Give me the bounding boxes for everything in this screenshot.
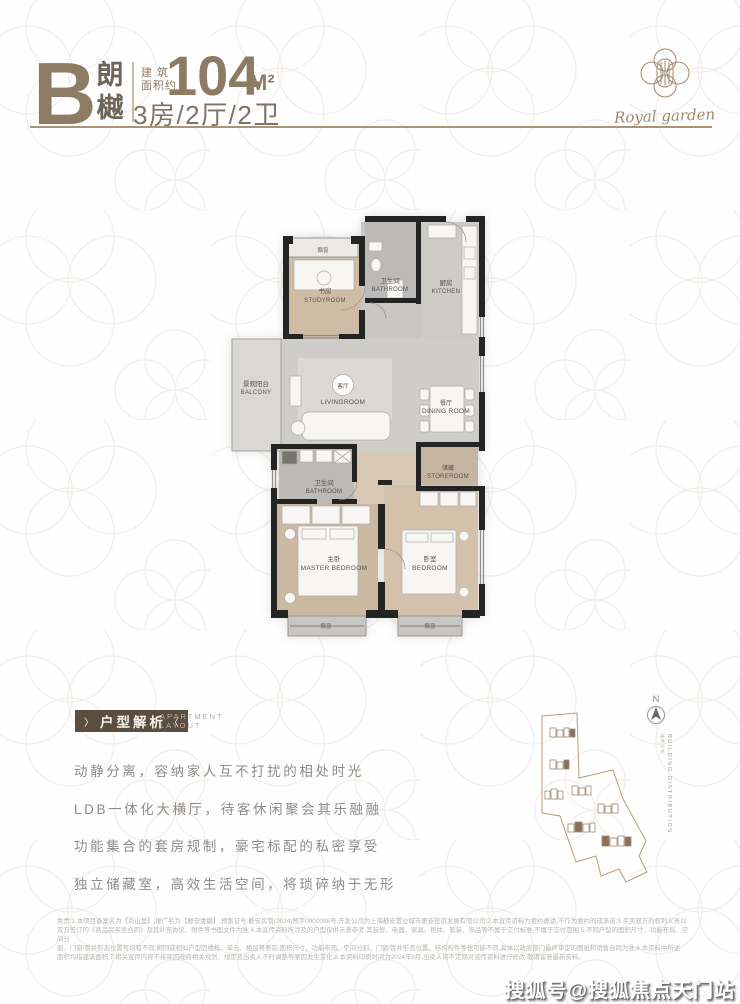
master-label-zh: 主卧 bbox=[328, 554, 342, 563]
analysis-paragraph: 动静分离，容纳家人互不打扰的相处时光 LDB一体化大横厅，待客休闲聚会其乐融融 … bbox=[74, 760, 414, 910]
kitchen-label-en: KITCHEN bbox=[432, 289, 460, 295]
north-arrow-icon: N bbox=[648, 694, 665, 724]
header-rule bbox=[30, 126, 712, 128]
bathroom2-label-en: BATHROOM bbox=[306, 489, 343, 495]
dining-label-en: DINING ROOM bbox=[422, 408, 470, 415]
bathroom2-label-zh: 卫生间 bbox=[314, 478, 334, 487]
balcony-label-en: BALCONY bbox=[241, 390, 272, 396]
disclaimer-line: 双方签订的《商品房买卖合同》及其补充协议、附件等书面文件为准;4.本宣传资料所涉… bbox=[57, 926, 691, 944]
kitchen-label-zh: 厨房 bbox=[440, 278, 453, 287]
dining-label-zh: 餐厅 bbox=[440, 399, 452, 407]
analysis-line: 功能集合的套房规制，豪宅标配的私密享受 bbox=[74, 835, 414, 855]
study-label-zh: 书房 bbox=[319, 286, 332, 295]
living-label-zh: 客厅 bbox=[337, 382, 349, 390]
disclaimer-line: 割、门窗/管井形态位置等均有不同;相同或相似户型因楼栋、单元、楼层等差别,面积尺… bbox=[57, 944, 691, 953]
bathroom1-label-zh: 卫生间 bbox=[380, 276, 400, 285]
storeroom-label-zh: 储藏 bbox=[442, 464, 454, 472]
bay-window-label-top: 飘窗 bbox=[317, 246, 329, 254]
storeroom-label-en: STOREROOM bbox=[427, 474, 469, 480]
unit-type-letter: B bbox=[33, 50, 95, 138]
disclaimer-line: 免责:1.本项目备案名为【岚山里】,推广名为【静安壹樾】,预售证号:静安房管(2… bbox=[57, 917, 691, 926]
analysis-line: 独立储藏室，高效生活空间，将琐碎纳于无形 bbox=[74, 873, 414, 893]
bay-window-label-left: 飘窗 bbox=[320, 622, 332, 630]
site-plan: N BUILDING DISTRIBUTION 楼栋分布 bbox=[520, 686, 696, 906]
analysis-line: LDB一体化大横厅，待客休闲聚会其乐融融 bbox=[74, 798, 414, 818]
unit-type-name: 朗 樾 bbox=[95, 59, 125, 125]
unit-name-char-bottom: 樾 bbox=[95, 92, 125, 125]
brand-logo: Royal garden bbox=[606, 46, 724, 126]
section-subtitle-line1: APARTMENT bbox=[160, 712, 224, 721]
bay-window-label-right: 飘窗 bbox=[424, 622, 436, 630]
analysis-line: 动静分离，容纳家人互不打扰的相处时光 bbox=[74, 760, 414, 780]
section-subtitle-line2: LAYOUT bbox=[160, 721, 224, 730]
watermark-sohu: 搜狐号@搜狐焦点天门站 bbox=[504, 974, 735, 1003]
balcony-label-zh: 景观阳台 bbox=[243, 379, 269, 388]
disclaimer: 免责:1.本项目备案名为【岚山里】,推广名为【静安壹樾】,预售证号:静安房管(2… bbox=[57, 917, 691, 962]
quatrefoil-logo-icon bbox=[638, 46, 692, 100]
brand-logo-text: Royal garden bbox=[614, 105, 716, 127]
svg-text:N: N bbox=[653, 694, 660, 704]
bedroom-label-en: BEDROOM bbox=[412, 565, 448, 572]
master-label-en: MASTER BEDROOM bbox=[301, 565, 368, 572]
unit-name-char-top: 朗 bbox=[95, 59, 125, 92]
section-subtitle: APARTMENT LAYOUT bbox=[160, 712, 224, 730]
bedroom-label-zh: 卧室 bbox=[424, 554, 438, 563]
bathroom1-label-en: BATHROOM bbox=[372, 287, 409, 293]
site-caption-zh: 楼栋分布 bbox=[660, 734, 666, 754]
site-caption-en: BUILDING DISTRIBUTION bbox=[666, 734, 672, 834]
floorplan: 飘窗 书房 STUDYROOM 卫生间 BATHROOM 厨房 KITCHEN … bbox=[224, 192, 509, 662]
badge-left-arrow-icon: 〉 bbox=[84, 714, 94, 729]
site-buildings bbox=[545, 728, 631, 846]
area-unit: M² bbox=[249, 70, 275, 96]
section-badge-label: 户型解析 bbox=[100, 711, 166, 731]
study-label-en: STUDYROOM bbox=[304, 298, 346, 304]
disclaimer-line: 面积均指建筑面积;7.相关宣传内容不排除因政府相关规划、规定及出卖人不时调整等原… bbox=[57, 953, 691, 962]
living-label-en: LIVINGROOM bbox=[321, 399, 366, 406]
